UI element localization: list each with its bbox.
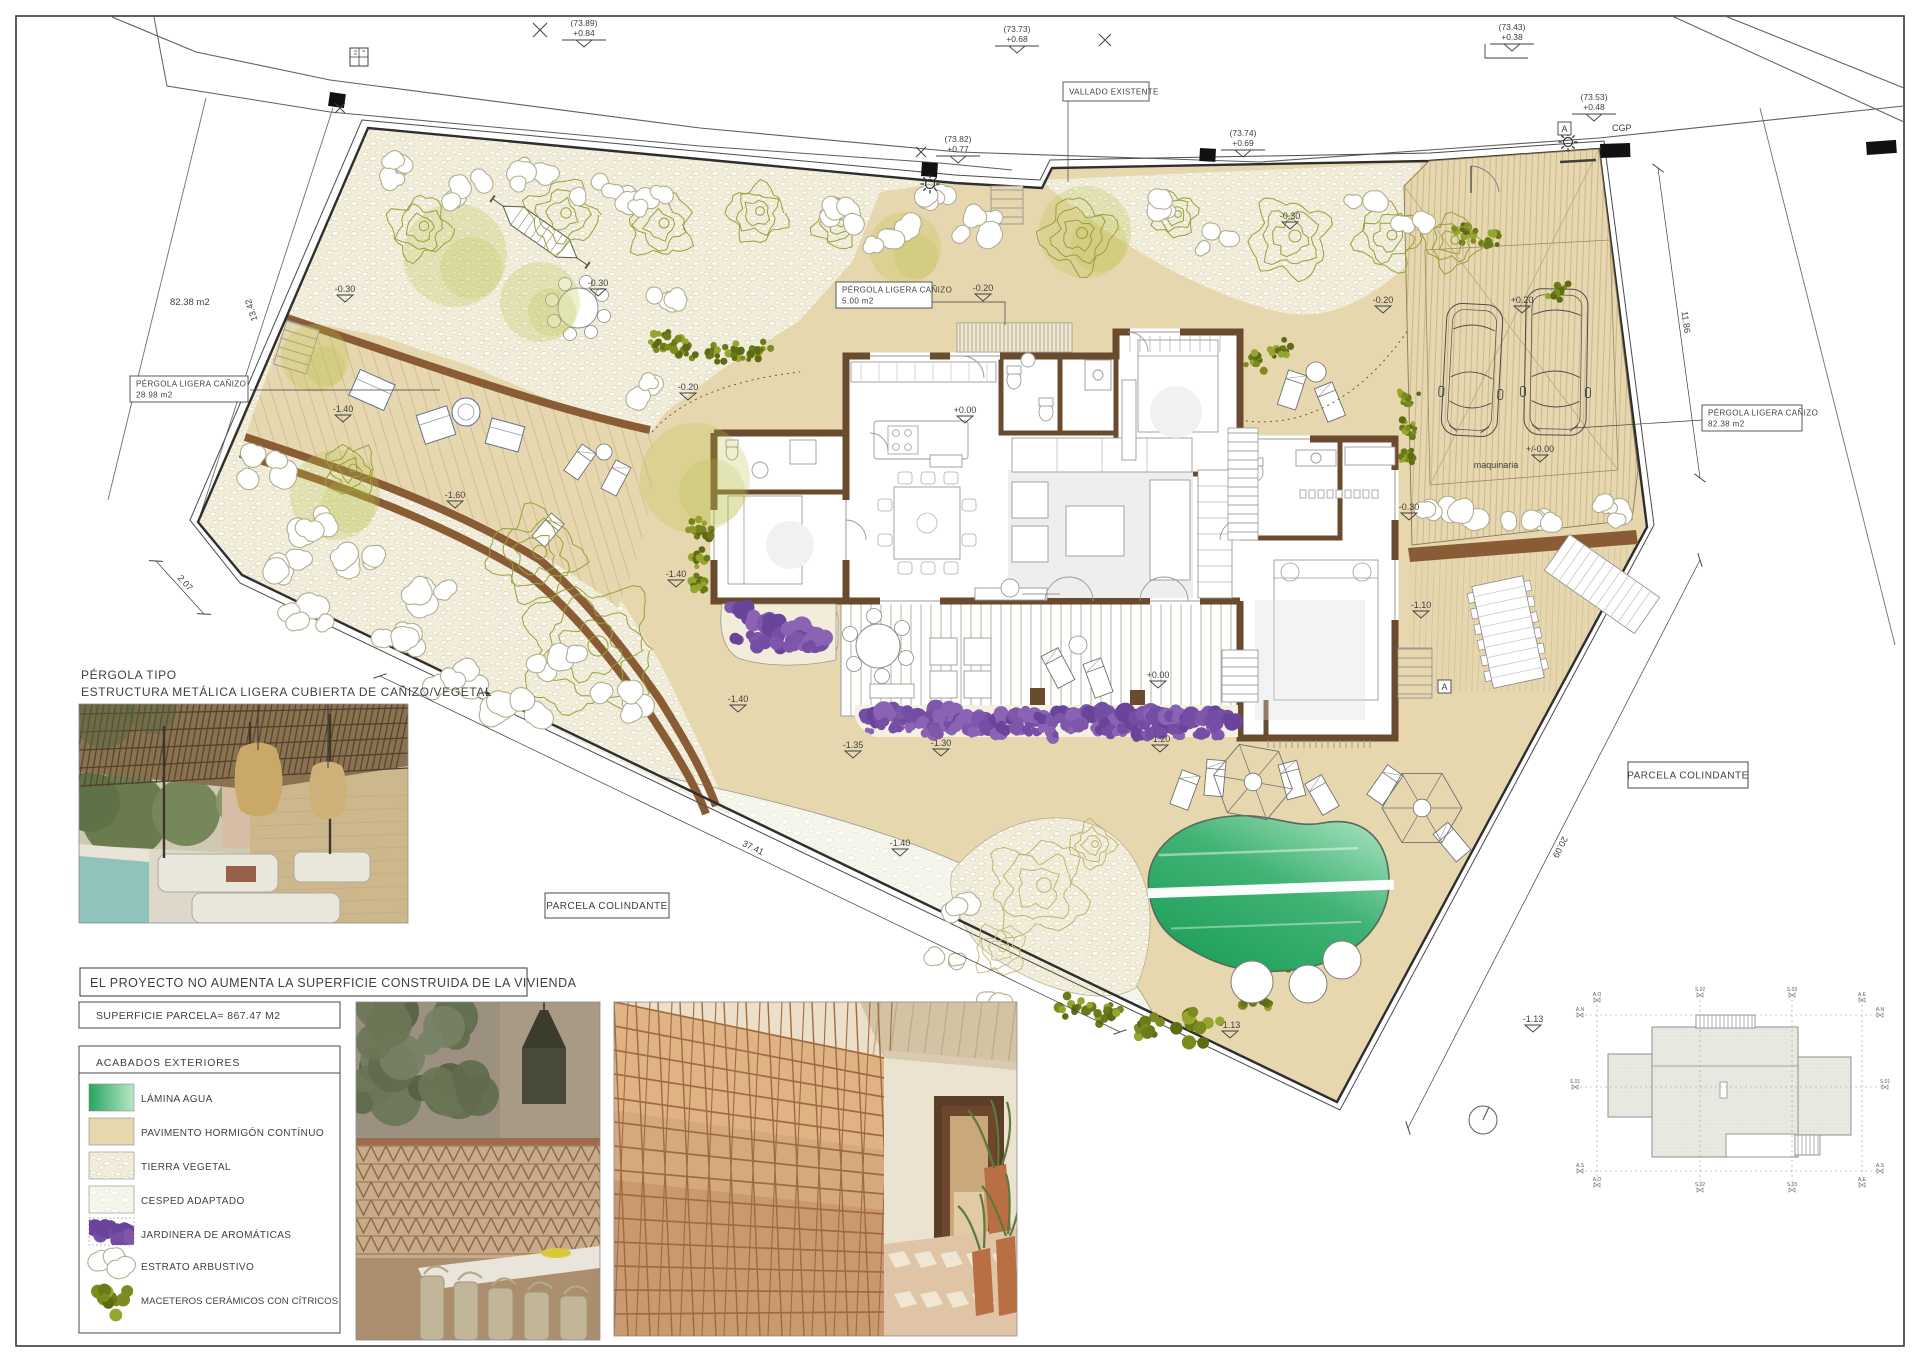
svg-text:-0.20: -0.20 — [678, 382, 699, 392]
svg-text:-0.30: -0.30 — [335, 284, 356, 294]
svg-text:A.S: A.S — [1576, 1163, 1585, 1169]
svg-text:A.E: A.E — [1858, 1177, 1867, 1183]
svg-text:-1.20: -1.20 — [1150, 734, 1171, 744]
svg-text:CESPED ADAPTADO: CESPED ADAPTADO — [141, 1196, 245, 1207]
svg-text:28.98 m2: 28.98 m2 — [136, 391, 173, 400]
svg-text:PARCELA COLINDANTE: PARCELA COLINDANTE — [546, 901, 668, 912]
svg-text:+0.84: +0.84 — [573, 28, 595, 38]
svg-text:A: A — [1441, 682, 1447, 692]
svg-text:A.N: A.N — [1576, 1007, 1585, 1013]
svg-text:ESTRUCTURA METÁLICA LIGERA CUB: ESTRUCTURA METÁLICA LIGERA CUBIERTA DE C… — [81, 684, 492, 699]
svg-text:S.03: S.03 — [1787, 1182, 1798, 1188]
svg-text:-1.40: -1.40 — [890, 838, 911, 848]
svg-text:+0.20: +0.20 — [1511, 295, 1534, 305]
svg-text:A.O: A.O — [1593, 992, 1602, 998]
svg-text:PARCELA COLINDANTE: PARCELA COLINDANTE — [1627, 771, 1749, 782]
svg-text:CGP: CGP — [1612, 123, 1632, 133]
svg-text:+0.38: +0.38 — [1501, 32, 1523, 42]
svg-text:-1.13: -1.13 — [1523, 1014, 1544, 1024]
svg-text:EL PROYECTO NO AUMENTA LA SUPE: EL PROYECTO NO AUMENTA LA SUPERFICIE CON… — [90, 976, 577, 990]
svg-text:-0.30: -0.30 — [1280, 211, 1301, 221]
svg-text:TIERRA VEGETAL: TIERRA VEGETAL — [141, 1162, 231, 1173]
svg-text:S.01: S.01 — [1570, 1079, 1581, 1085]
svg-text:+0.69: +0.69 — [1232, 138, 1254, 148]
svg-text:(73.53): (73.53) — [1581, 92, 1608, 102]
svg-text:(73.43): (73.43) — [1499, 22, 1526, 32]
svg-text:+0.68: +0.68 — [1006, 34, 1028, 44]
svg-text:-0.30: -0.30 — [1399, 502, 1420, 512]
svg-text:-1.35: -1.35 — [843, 740, 864, 750]
svg-text:-1.40: -1.40 — [728, 694, 749, 704]
svg-text:maquinaria: maquinaria — [1474, 460, 1519, 470]
svg-text:-0.20: -0.20 — [1373, 295, 1394, 305]
svg-text:+/-0.00: +/-0.00 — [1526, 444, 1554, 454]
svg-text:ESTRATO ARBUSTIVO: ESTRATO ARBUSTIVO — [141, 1262, 254, 1273]
svg-text:-1.13: -1.13 — [1220, 1020, 1241, 1030]
svg-text:VALLADO EXISTENTE: VALLADO EXISTENTE — [1069, 88, 1159, 97]
svg-text:A.N: A.N — [1876, 1007, 1885, 1013]
svg-text:+0.48: +0.48 — [1583, 102, 1605, 112]
svg-text:(73.74): (73.74) — [1230, 128, 1257, 138]
svg-text:5.00 m2: 5.00 m2 — [842, 297, 874, 306]
svg-text:PÉRGOLA LIGERA CAÑIZO: PÉRGOLA LIGERA CAÑIZO — [842, 286, 952, 295]
svg-text:LÁMINA AGUA: LÁMINA AGUA — [141, 1092, 213, 1105]
svg-text:A.E: A.E — [1858, 992, 1867, 998]
svg-text:S.03: S.03 — [1787, 987, 1798, 993]
svg-text:S.02: S.02 — [1695, 987, 1706, 993]
svg-text:82.38 m2: 82.38 m2 — [1708, 420, 1745, 429]
svg-text:-1.40: -1.40 — [333, 404, 354, 414]
svg-text:(73.82): (73.82) — [945, 134, 972, 144]
svg-text:-1.40: -1.40 — [666, 569, 687, 579]
svg-text:PAVIMENTO HORMIGÓN CONTÍNUO: PAVIMENTO HORMIGÓN CONTÍNUO — [141, 1126, 324, 1139]
svg-text:A: A — [1561, 124, 1567, 134]
svg-text:MACETEROS CERÁMICOS CON CÍTRIC: MACETEROS CERÁMICOS CON CÍTRICOS — [141, 1296, 338, 1307]
svg-text:-1.10: -1.10 — [1411, 600, 1432, 610]
svg-text:-0.30: -0.30 — [588, 278, 609, 288]
svg-text:-0.20: -0.20 — [973, 283, 994, 293]
svg-text:S.02: S.02 — [1695, 1182, 1706, 1188]
svg-text:-1.30: -1.30 — [931, 738, 952, 748]
svg-text:A.S: A.S — [1876, 1163, 1885, 1169]
svg-text:(73.73): (73.73) — [1004, 24, 1031, 34]
svg-text:PÉRGOLA LIGERA CAÑIZO: PÉRGOLA LIGERA CAÑIZO — [136, 380, 246, 389]
svg-text:+0.00: +0.00 — [1147, 670, 1170, 680]
svg-text:-1.60: -1.60 — [445, 490, 466, 500]
svg-text:JARDINERA DE AROMÁTICAS: JARDINERA DE AROMÁTICAS — [141, 1228, 291, 1241]
svg-text:S.01: S.01 — [1880, 1079, 1891, 1085]
svg-text:A.O: A.O — [1593, 1177, 1602, 1183]
svg-text:(73.89): (73.89) — [571, 18, 598, 28]
svg-text:PÉRGOLA LIGERA CAÑIZO: PÉRGOLA LIGERA CAÑIZO — [1708, 409, 1818, 418]
svg-text:+0.77: +0.77 — [947, 144, 969, 154]
svg-text:PÉRGOLA TIPO: PÉRGOLA TIPO — [81, 667, 177, 682]
svg-text:ACABADOS EXTERIORES: ACABADOS EXTERIORES — [96, 1057, 240, 1069]
svg-text:SUPERFICIE PARCELA= 867.47 M2: SUPERFICIE PARCELA= 867.47 M2 — [96, 1010, 280, 1022]
svg-text:82.38 m2: 82.38 m2 — [170, 297, 210, 308]
svg-text:+0.00: +0.00 — [954, 405, 977, 415]
